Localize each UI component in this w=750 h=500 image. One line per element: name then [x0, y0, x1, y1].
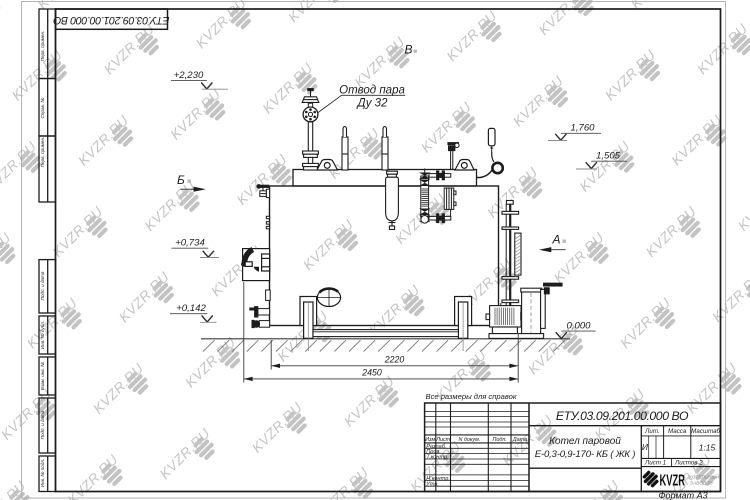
- svg-text:1:15: 1:15: [699, 443, 716, 453]
- svg-text:А: А: [552, 233, 561, 247]
- svg-text:+2,230: +2,230: [174, 70, 204, 81]
- svg-text:Инв. № дубл.: Инв. № дубл.: [40, 321, 45, 349]
- svg-text:Подп. и дата: Подп. и дата: [40, 410, 45, 439]
- svg-text:Перв. примен.: Перв. примен.: [40, 31, 45, 62]
- svg-text:Листов 2: Листов 2: [674, 460, 703, 467]
- svg-text:Дата: Дата: [512, 437, 527, 443]
- svg-text:2450: 2450: [361, 368, 382, 378]
- svg-text:Е-0,3-0,9-170- КБ ( ЖК ): Е-0,3-0,9-170- КБ ( ЖК ): [535, 449, 635, 460]
- svg-text:Изм: Изм: [425, 437, 435, 443]
- svg-text:Отвод пара: Отвод пара: [339, 85, 405, 97]
- svg-text:Подп. и дата: Подп. и дата: [40, 271, 45, 300]
- svg-text:2220: 2220: [384, 355, 405, 365]
- svg-text:+0,142: +0,142: [176, 303, 206, 314]
- svg-text:Масштаб: Масштаб: [691, 428, 720, 435]
- svg-text:Б: Б: [177, 173, 185, 187]
- svg-text:Подп.: Подп.: [493, 437, 507, 443]
- svg-text:Ду 32: Ду 32: [356, 98, 389, 110]
- svg-text:Лит.: Лит.: [644, 428, 660, 435]
- svg-text:Т.контр.: Т.контр.: [426, 455, 449, 461]
- svg-text:Лист: Лист: [435, 437, 450, 443]
- svg-text:0,000: 0,000: [566, 321, 591, 332]
- svg-text:Утв.: Утв.: [425, 482, 439, 488]
- svg-text:Формат А3: Формат А3: [658, 490, 707, 500]
- svg-text:+0,734: +0,734: [175, 238, 205, 249]
- svg-text:Лист 1: Лист 1: [644, 460, 666, 467]
- svg-text:1,505: 1,505: [596, 150, 621, 161]
- svg-text:Котел паровой: Котел паровой: [549, 436, 621, 447]
- svg-text:Взам. инв. №: Взам. инв. №: [40, 362, 45, 390]
- svg-text:В: В: [405, 43, 413, 57]
- svg-text:ЕТУ.03.09.201.00.000 ВО: ЕТУ.03.09.201.00.000 ВО: [556, 409, 689, 423]
- svg-text:И: И: [642, 442, 649, 452]
- svg-text:Масса: Масса: [668, 428, 687, 435]
- svg-text:1,760: 1,760: [570, 122, 595, 133]
- svg-text:ЗАВОД.РУ: ЗАВОД.РУ: [690, 481, 714, 487]
- svg-text:Все размеры для справок: Все размеры для справок: [426, 392, 517, 401]
- svg-text:Перв. примен.: Перв. примен.: [40, 137, 45, 168]
- svg-text:ЕТУ.03.09.201.00.000 ВО: ЕТУ.03.09.201.00.000 ВО: [53, 14, 169, 26]
- svg-text:N докум.: N докум.: [458, 437, 480, 443]
- svg-text:Инв. № подл.: Инв. № подл.: [40, 459, 45, 488]
- svg-text:Справ. №: Справ. №: [40, 98, 45, 119]
- svg-text:KVZR: KVZR: [660, 473, 686, 490]
